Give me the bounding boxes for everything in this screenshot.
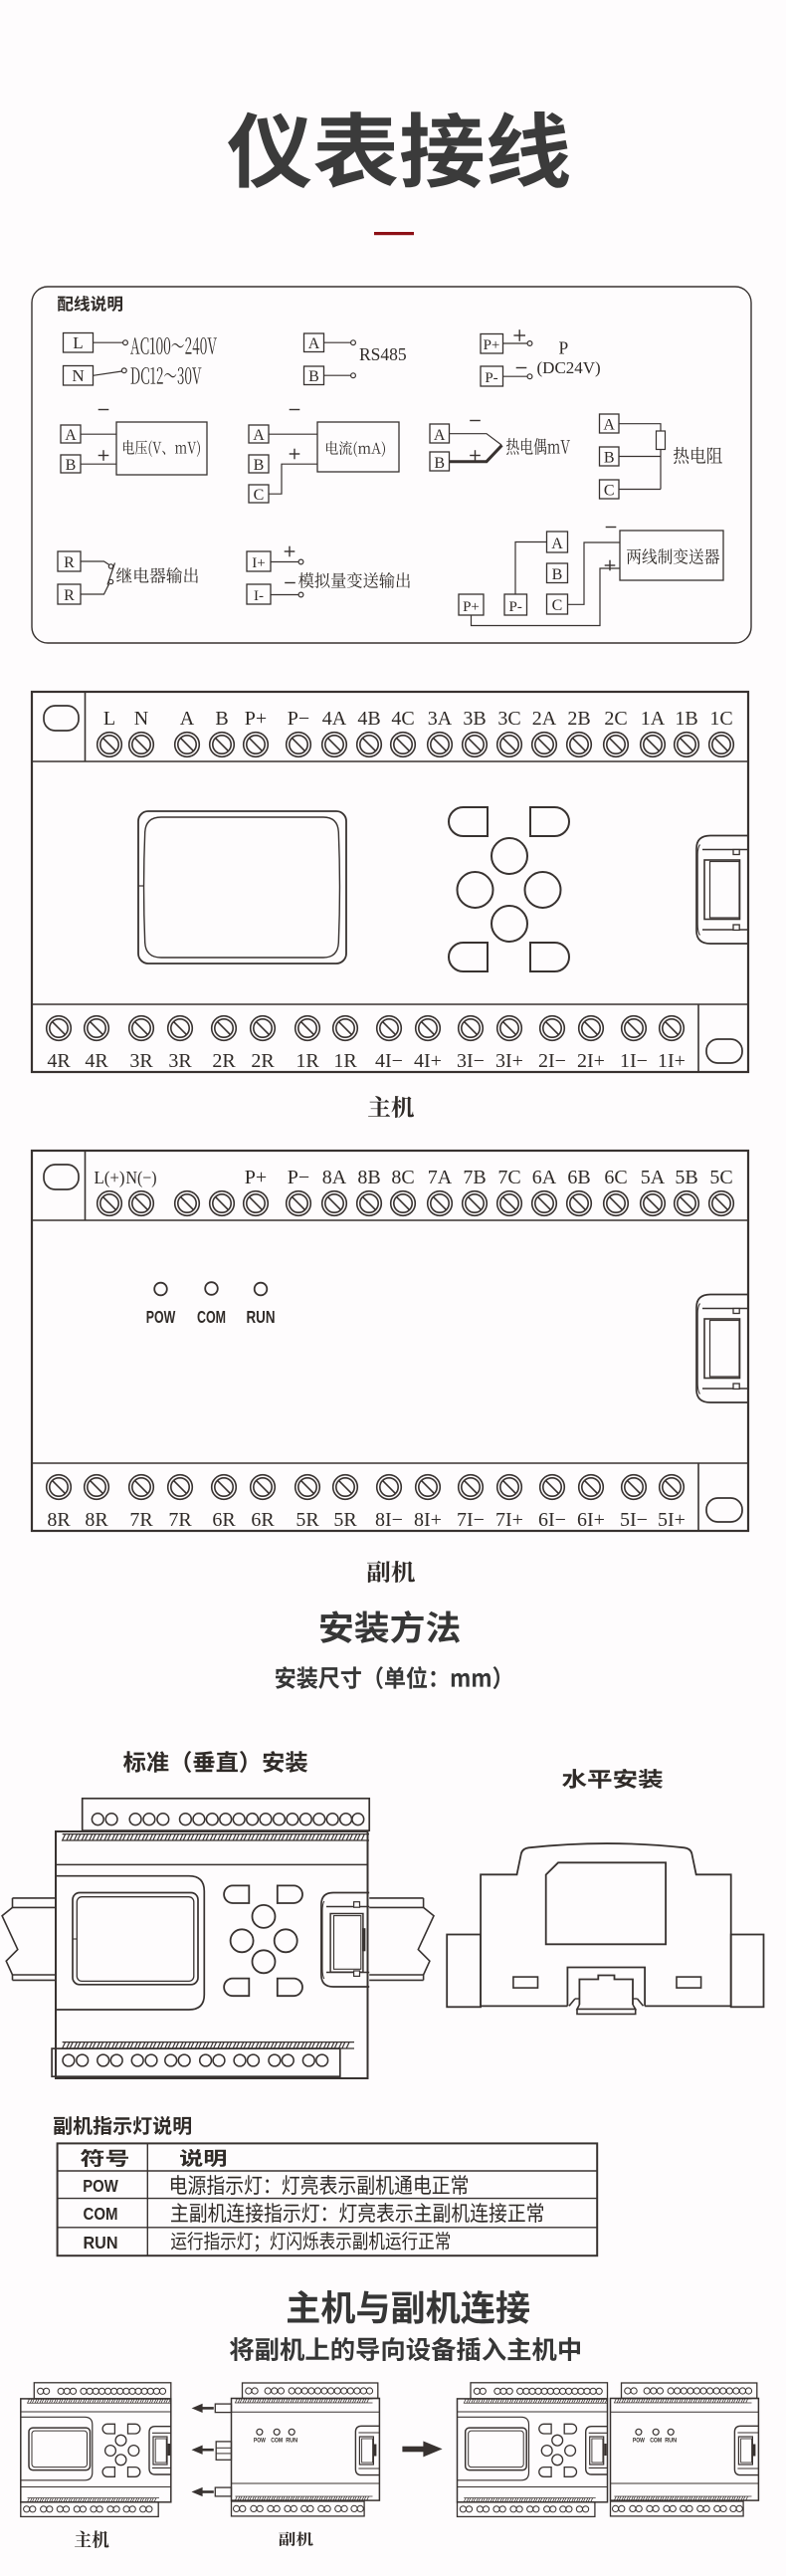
svg-text:2I−: 2I− [538, 1050, 566, 1072]
svg-text:N(−): N(−) [126, 1168, 157, 1188]
svg-text:B: B [308, 368, 319, 385]
svg-text:P-: P- [485, 370, 497, 386]
svg-text:1C: 1C [709, 708, 732, 730]
svg-text:6A: 6A [532, 1167, 557, 1188]
svg-text:RS485: RS485 [359, 344, 407, 364]
svg-text:2R: 2R [212, 1050, 236, 1072]
svg-text:POW: POW [146, 1307, 176, 1327]
svg-text:7B: 7B [463, 1167, 486, 1188]
svg-text:I+: I+ [252, 555, 265, 571]
svg-text:A: A [253, 427, 265, 444]
svg-text:3R: 3R [168, 1050, 192, 1072]
svg-text:8R: 8R [85, 1509, 108, 1531]
svg-text:COM: COM [650, 2438, 662, 2445]
svg-text:7R: 7R [168, 1509, 192, 1531]
svg-text:2I+: 2I+ [577, 1050, 605, 1072]
svg-text:L: L [73, 333, 83, 352]
svg-text:5R: 5R [295, 1509, 319, 1531]
svg-text:4A: 4A [322, 708, 347, 730]
svg-text:I-: I- [254, 588, 264, 604]
svg-text:3I−: 3I− [457, 1050, 485, 1072]
svg-text:1A: 1A [641, 708, 666, 730]
svg-text:RUN: RUN [247, 1307, 276, 1327]
svg-text:POW: POW [83, 2176, 118, 2196]
svg-text:6R: 6R [212, 1509, 236, 1531]
svg-text:2A: 2A [532, 708, 557, 730]
svg-text:P+: P+ [463, 599, 480, 615]
svg-text:B: B [552, 566, 563, 583]
svg-text:2R: 2R [251, 1050, 275, 1072]
svg-text:A: A [551, 536, 563, 552]
svg-text:COM: COM [271, 2438, 283, 2445]
svg-text:1I−: 1I− [620, 1050, 648, 1072]
svg-text:1I+: 1I+ [658, 1050, 686, 1072]
svg-text:6B: 6B [567, 1167, 590, 1188]
svg-text:5I+: 5I+ [658, 1509, 686, 1531]
svg-text:P−: P− [288, 1167, 309, 1188]
svg-text:8I+: 8I+ [414, 1509, 442, 1531]
svg-text:4I−: 4I− [375, 1050, 403, 1072]
svg-text:5B: 5B [675, 1167, 697, 1188]
svg-text:RUN: RUN [665, 2438, 677, 2445]
svg-text:R: R [64, 554, 75, 571]
svg-text:N: N [134, 708, 148, 730]
svg-text:C: C [552, 597, 563, 614]
svg-text:B: B [66, 457, 77, 474]
svg-text:5C: 5C [709, 1167, 732, 1188]
svg-text:COM: COM [197, 1307, 226, 1327]
svg-text:3I+: 3I+ [495, 1050, 523, 1072]
svg-text:2C: 2C [604, 708, 627, 730]
svg-text:8C: 8C [391, 1167, 414, 1188]
svg-text:R: R [64, 587, 75, 604]
svg-text:C: C [254, 487, 265, 504]
svg-text:P+: P+ [484, 337, 500, 353]
svg-text:3R: 3R [129, 1050, 153, 1072]
svg-text:8I−: 8I− [375, 1509, 403, 1531]
svg-text:1R: 1R [333, 1050, 357, 1072]
svg-text:7I−: 7I− [457, 1509, 485, 1531]
svg-text:N: N [72, 366, 84, 385]
svg-text:3C: 3C [497, 708, 520, 730]
svg-text:1R: 1R [295, 1050, 319, 1072]
svg-text:6C: 6C [604, 1167, 627, 1188]
svg-text:B: B [215, 708, 228, 730]
svg-text:L: L [103, 708, 115, 730]
svg-text:1B: 1B [675, 708, 697, 730]
svg-text:B: B [604, 450, 615, 467]
svg-text:A: A [434, 427, 446, 444]
svg-text:4C: 4C [391, 708, 414, 730]
svg-text:7I+: 7I+ [495, 1509, 523, 1531]
svg-text:A: A [603, 417, 615, 434]
svg-text:8R: 8R [47, 1509, 71, 1531]
svg-text:7C: 7C [497, 1167, 520, 1188]
svg-text:6I−: 6I− [538, 1509, 566, 1531]
svg-text:6R: 6R [251, 1509, 275, 1531]
svg-text:A: A [180, 708, 195, 730]
svg-text:P+: P+ [245, 708, 267, 730]
svg-text:5R: 5R [333, 1509, 357, 1531]
svg-text:RUN: RUN [286, 2438, 297, 2445]
svg-text:3B: 3B [463, 708, 486, 730]
svg-text:3A: 3A [428, 708, 453, 730]
svg-text:7R: 7R [129, 1509, 153, 1531]
svg-text:B: B [434, 455, 445, 472]
svg-text:6I+: 6I+ [577, 1509, 605, 1531]
svg-text:P−: P− [288, 708, 309, 730]
svg-text:5I−: 5I− [620, 1509, 648, 1531]
svg-text:2B: 2B [567, 708, 590, 730]
svg-text:POW: POW [254, 2438, 267, 2445]
svg-text:A: A [308, 335, 320, 352]
svg-text:8A: 8A [322, 1167, 347, 1188]
svg-text:L(+): L(+) [95, 1168, 125, 1188]
svg-text:COM: COM [84, 2204, 118, 2224]
svg-text:4R: 4R [85, 1050, 108, 1072]
svg-text:A: A [65, 427, 77, 444]
svg-text:B: B [254, 457, 265, 474]
svg-text:4I+: 4I+ [414, 1050, 442, 1072]
svg-text:4B: 4B [357, 708, 380, 730]
svg-text:POW: POW [633, 2438, 646, 2445]
svg-text:5A: 5A [641, 1167, 666, 1188]
svg-text:P-: P- [509, 599, 522, 615]
svg-text:8B: 8B [357, 1167, 380, 1188]
svg-text:4R: 4R [47, 1050, 71, 1072]
svg-text:P+: P+ [245, 1167, 267, 1188]
svg-text:P: P [559, 338, 569, 358]
svg-text:7A: 7A [428, 1167, 453, 1188]
svg-text:(DC24V): (DC24V) [537, 358, 601, 377]
svg-text:RUN: RUN [84, 2233, 118, 2253]
svg-text:C: C [604, 483, 615, 500]
